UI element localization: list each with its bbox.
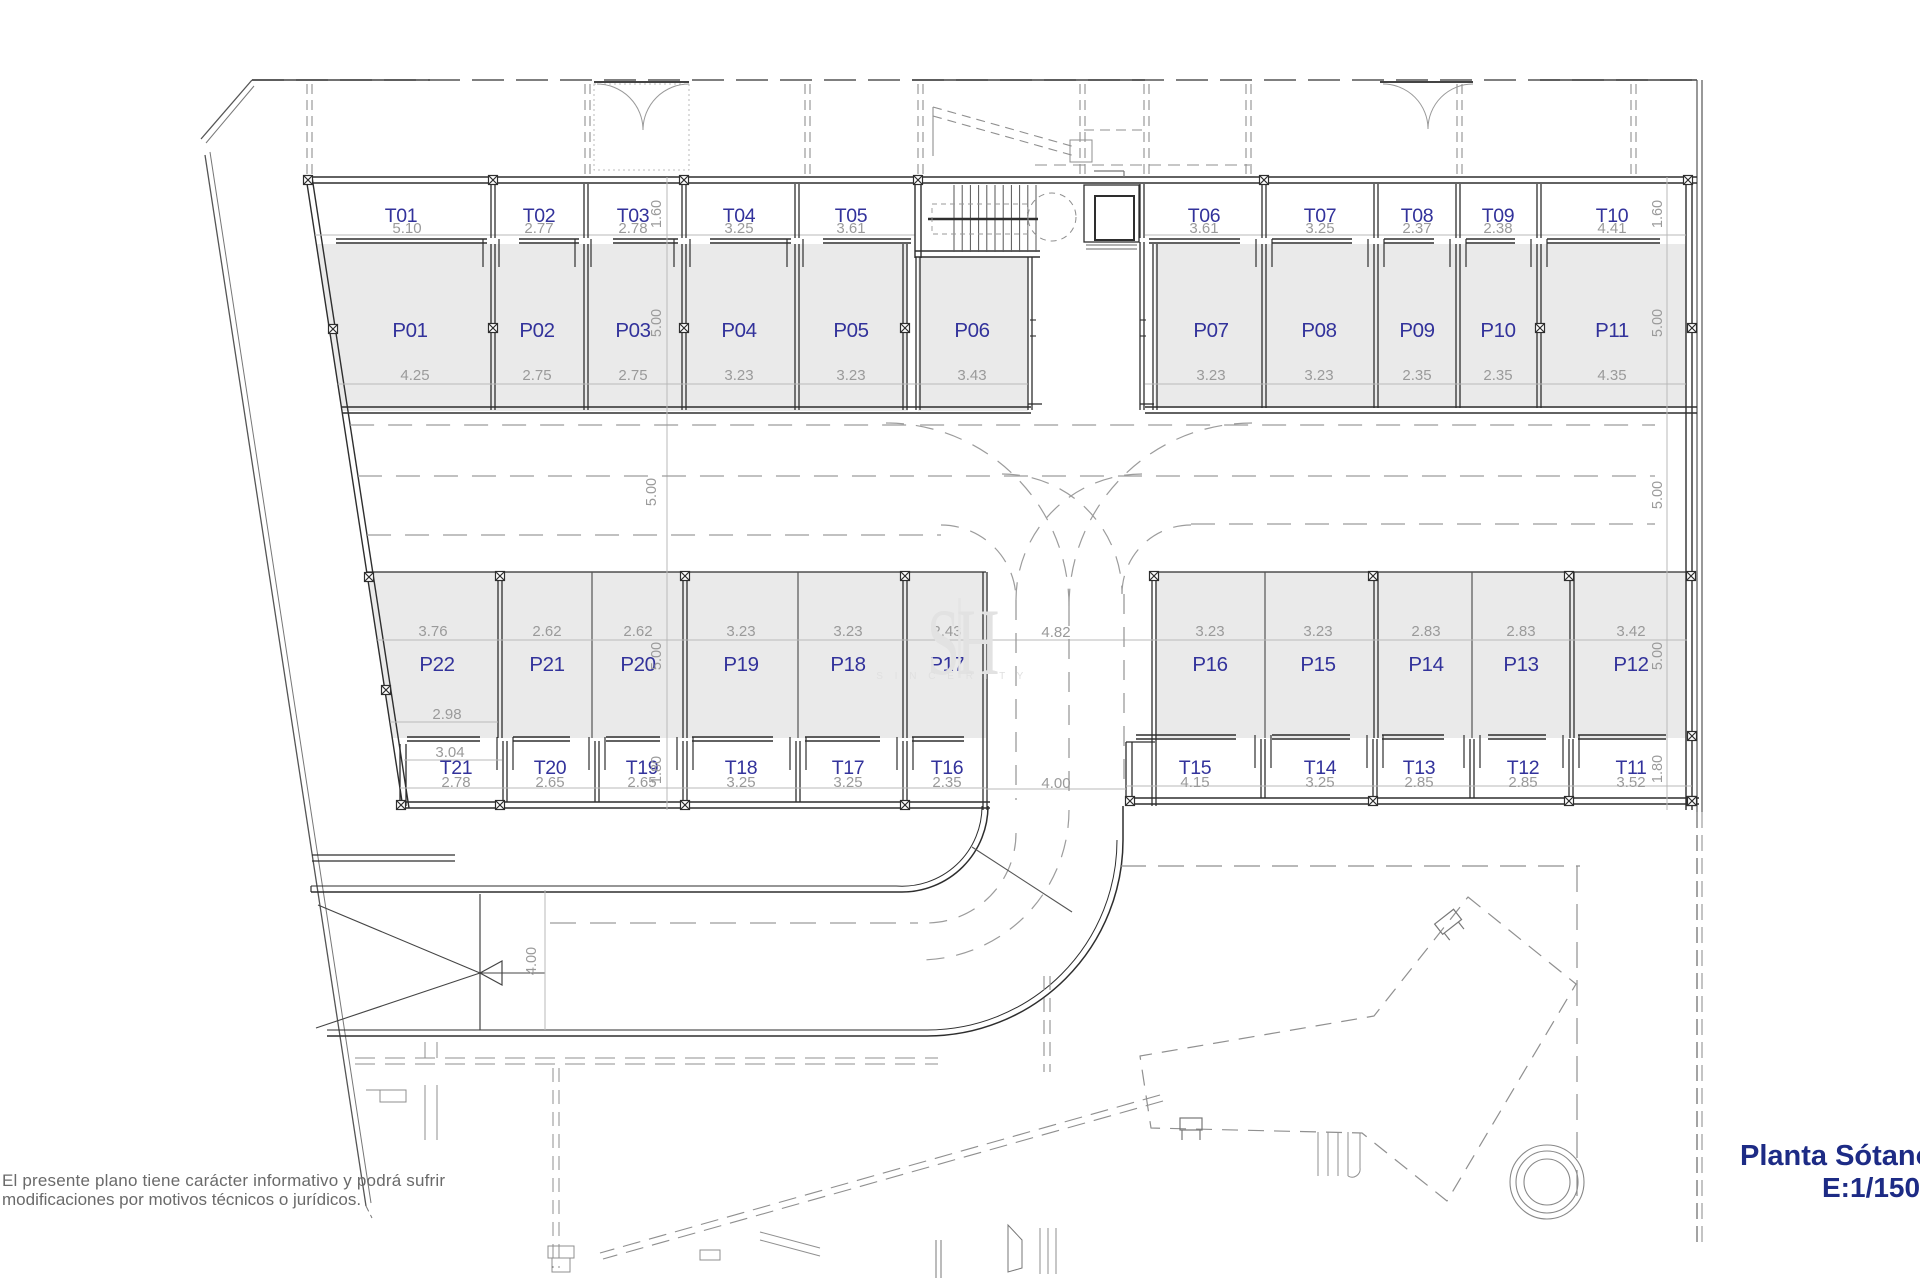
svg-text:5.00: 5.00 — [644, 478, 660, 506]
svg-text:2.35: 2.35 — [1402, 367, 1431, 384]
svg-text:P09: P09 — [1399, 319, 1434, 342]
svg-text:3.23: 3.23 — [724, 367, 753, 384]
svg-text:5.00: 5.00 — [649, 309, 665, 337]
svg-text:4.00: 4.00 — [524, 947, 540, 975]
svg-text:3.23: 3.23 — [1196, 367, 1225, 384]
svg-text:4.82: 4.82 — [1041, 624, 1070, 641]
svg-text:P10: P10 — [1480, 319, 1515, 342]
svg-text:3.25: 3.25 — [724, 220, 753, 237]
svg-text:2.38: 2.38 — [1483, 220, 1512, 237]
svg-text:3.23: 3.23 — [726, 623, 755, 640]
svg-text:3.76: 3.76 — [418, 623, 447, 640]
svg-text:Planta Sótano: Planta Sótano — [1740, 1140, 1920, 1172]
svg-text:2.35: 2.35 — [1483, 367, 1512, 384]
svg-text:P02: P02 — [519, 319, 554, 342]
svg-text:P19: P19 — [723, 653, 758, 676]
svg-text:3.23: 3.23 — [1304, 367, 1333, 384]
svg-text:P13: P13 — [1503, 653, 1538, 676]
svg-text:P11: P11 — [1595, 319, 1629, 342]
svg-text:2.83: 2.83 — [1411, 623, 1440, 640]
svg-text:4.00: 4.00 — [1041, 775, 1070, 792]
svg-text:2.62: 2.62 — [532, 623, 561, 640]
svg-text:5.00: 5.00 — [1650, 309, 1666, 337]
svg-text:4.35: 4.35 — [1597, 367, 1626, 384]
svg-text:P16: P16 — [1192, 653, 1227, 676]
svg-text:3.43: 3.43 — [957, 367, 986, 384]
svg-text:El presente plano tiene caráct: El presente plano tiene carácter informa… — [2, 1171, 445, 1190]
svg-text:5.00: 5.00 — [1650, 642, 1666, 670]
svg-text:3.04: 3.04 — [435, 744, 464, 761]
svg-text:2.75: 2.75 — [618, 367, 647, 384]
svg-text:1.60: 1.60 — [649, 200, 665, 228]
svg-text:2.75: 2.75 — [522, 367, 551, 384]
svg-text:3.23: 3.23 — [833, 623, 862, 640]
svg-text:3.25: 3.25 — [1305, 774, 1334, 791]
svg-text:P14: P14 — [1408, 653, 1443, 676]
svg-text:1.80: 1.80 — [649, 756, 665, 784]
svg-text:3.25: 3.25 — [833, 774, 862, 791]
svg-text:2.78: 2.78 — [618, 220, 647, 237]
svg-text:3.23: 3.23 — [1303, 623, 1332, 640]
svg-text:3.25: 3.25 — [1305, 220, 1334, 237]
svg-text:2.37: 2.37 — [1402, 220, 1431, 237]
svg-text:3.23: 3.23 — [836, 367, 865, 384]
svg-text:4.15: 4.15 — [1180, 774, 1209, 791]
svg-text:2.35: 2.35 — [932, 774, 961, 791]
svg-text:modificaciones por motivos téc: modificaciones por motivos técnicos o ju… — [2, 1190, 361, 1209]
svg-text:P06: P06 — [954, 319, 989, 342]
svg-text:P18: P18 — [830, 653, 865, 676]
svg-text:1.80: 1.80 — [1650, 755, 1666, 783]
svg-text:2.85: 2.85 — [1404, 774, 1433, 791]
svg-text:4.41: 4.41 — [1597, 220, 1626, 237]
svg-text:3.61: 3.61 — [836, 220, 865, 237]
svg-text:P21: P21 — [529, 653, 564, 676]
svg-text:1.60: 1.60 — [1650, 200, 1666, 228]
svg-text:3.42: 3.42 — [1616, 623, 1645, 640]
svg-text:3.52: 3.52 — [1616, 774, 1645, 791]
svg-text:2.85: 2.85 — [1508, 774, 1537, 791]
svg-text:2.62: 2.62 — [623, 623, 652, 640]
svg-text:3.25: 3.25 — [726, 774, 755, 791]
svg-text:4.25: 4.25 — [400, 367, 429, 384]
svg-text:P08: P08 — [1301, 319, 1336, 342]
svg-text:P03: P03 — [615, 319, 650, 342]
svg-text:P22: P22 — [419, 653, 454, 676]
svg-text:P07: P07 — [1193, 319, 1228, 342]
svg-text:P12: P12 — [1613, 653, 1648, 676]
svg-text:3.23: 3.23 — [1195, 623, 1224, 640]
svg-text:2.78: 2.78 — [441, 774, 470, 791]
svg-text:P05: P05 — [833, 319, 868, 342]
svg-text:5.00: 5.00 — [649, 642, 665, 670]
svg-text:P04: P04 — [721, 319, 756, 342]
svg-text:2.83: 2.83 — [1506, 623, 1535, 640]
svg-text:S I N C E R I T Y: S I N C E R I T Y — [876, 671, 1028, 682]
svg-text:2.65: 2.65 — [535, 774, 564, 791]
svg-text:E:1/150: E:1/150 — [1822, 1172, 1920, 1203]
svg-text:5.10: 5.10 — [392, 220, 421, 237]
svg-text:5.00: 5.00 — [1650, 481, 1666, 509]
svg-text:P01: P01 — [392, 319, 427, 342]
svg-text:2.77: 2.77 — [524, 220, 553, 237]
svg-text:P15: P15 — [1300, 653, 1335, 676]
svg-text:2.98: 2.98 — [432, 706, 461, 723]
svg-text:3.61: 3.61 — [1189, 220, 1218, 237]
